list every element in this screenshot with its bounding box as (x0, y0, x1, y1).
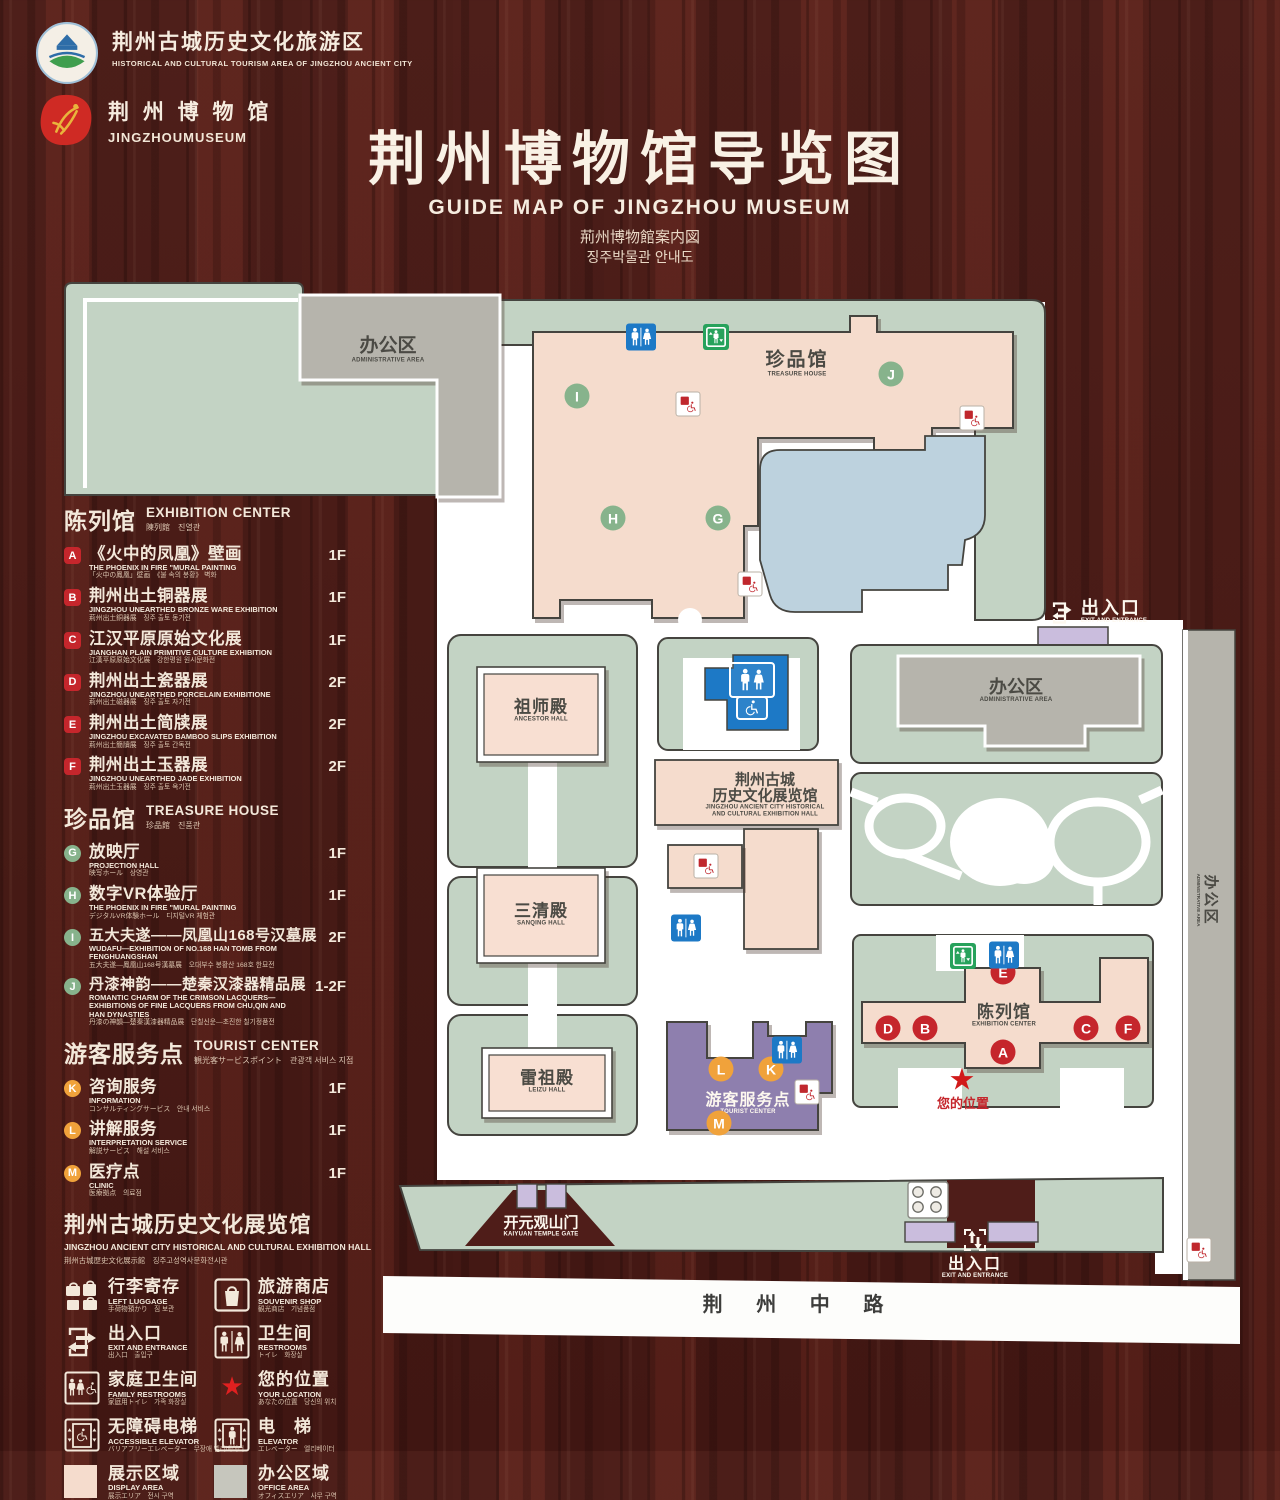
map-marker-J: J (879, 362, 904, 387)
accessible-elevator-icon (1187, 1238, 1212, 1263)
letter-badge: B (64, 589, 81, 606)
south-turnstile (908, 1182, 948, 1218)
accessible-elevator-icon (64, 1418, 100, 1452)
label-exit-south: 出入口 EXIT AND ENTRANCE (942, 1256, 1008, 1280)
treasure-house-notch (678, 608, 702, 632)
restroom-icon (671, 915, 701, 942)
legend-item-G: G 放映厅PROJECTION HALL映写ホール 상영관 1F (64, 843, 346, 878)
restroom-icon (772, 1037, 802, 1064)
label-admin-northwest: 办公区 ADMINISTRATIVE AREA (352, 337, 425, 364)
legend-item-M: M 医疗点CLINIC医療拠点 의료점 1F (64, 1163, 346, 1198)
label-sanqing-hall: 三清殿 SANQING HALL (514, 903, 568, 928)
floor-label: 1-2F (315, 978, 346, 995)
legend-item-F: F 荆州出土玉器展JINGZHOU UNEARTHED JADE EXHIBIT… (64, 756, 346, 791)
legend-item-H: H 数字VR体验厅THE PHOENIX IN FIRE "MURAL PAIN… (64, 885, 346, 920)
south-booth-w (905, 1222, 955, 1242)
label-road: 荆 州 中 路 (703, 1295, 898, 1317)
accessible-elevator-icon (676, 392, 701, 417)
restroom-icon (729, 662, 775, 698)
legend-item-B: B 荆州出土铜器展JINGZHOU UNEARTHED BRONZE WARE … (64, 587, 346, 622)
floor-label: 1F (328, 1165, 346, 1182)
luggage-icon (64, 1278, 100, 1312)
legend-item-K: K 咨询服务INFORMATIONコンサルティングサービス 안내 서비스 1F (64, 1078, 346, 1113)
label-exit-east: 出入口 EXIT AND ENTRANCE (1081, 599, 1147, 625)
label-exhibition-hall: 荆州古城 历史文化展览馆 JINGZHOU ANCIENT CITY HISTO… (706, 772, 825, 817)
label-kaiyuan-gate: 开元观山门 KAIYUAN TEMPLE GATE (503, 1216, 578, 1239)
letter-badge: A (64, 547, 81, 564)
letter-badge: K (64, 1080, 81, 1097)
legend-item-I: I 五大夫遂——凤凰山168号汉墓展WUDAFU—EXHIBITION OF N… (64, 927, 346, 969)
admin-strip-east (1183, 630, 1235, 1280)
display-area-swatch (64, 1465, 97, 1498)
gate-turnstile-w (517, 1184, 537, 1208)
map-marker-G: G (706, 506, 731, 531)
section-title: 陈列馆 (64, 502, 136, 536)
family-restrooms-icon (64, 1371, 100, 1405)
map-marker-H: H (601, 506, 626, 531)
section-treasure-house: 珍品馆 TREASURE HOUSE 珍品館 진품관 (64, 800, 346, 834)
location-star-icon: ★ (214, 1371, 250, 1405)
letter-badge: H (64, 887, 81, 904)
exhibition-hall-wing (744, 829, 818, 949)
facility-accessible-elevator: 无障碍电梯ACCESSIBLE ELEVATORバリアフリーエレベーター 무장애… (64, 1418, 214, 1454)
letter-badge: M (64, 1165, 81, 1182)
map-marker-L: L (709, 1057, 734, 1082)
floor-label: 1F (328, 1080, 346, 1097)
section-tourist-center: 游客服务点 TOURIST CENTER 観光客サービスポイント 관광객 서비스… (64, 1035, 346, 1069)
elevator-icon (214, 1418, 250, 1452)
exit-entrance-icon (1049, 600, 1075, 626)
floor-label: 1F (328, 845, 346, 862)
letter-badge: G (64, 845, 81, 862)
map-marker-C: C (1074, 1016, 1099, 1041)
label-treasure-house: 珍品馆 TREASURE HOUSE (765, 351, 828, 378)
letter-badge: I (64, 929, 81, 946)
floor-label: 1F (328, 887, 346, 904)
facility-elevator: 电 梯ELEVATORエレベーター 엘리베이터 (214, 1418, 364, 1454)
letter-badge: D (64, 674, 81, 691)
label-leizu-hall: 雷祖殿 LEIZU HALL (520, 1070, 574, 1095)
accessible-elevator-icon (738, 572, 763, 597)
facility-family-restrooms: 家庭卫生间FAMILY RESTROOMS家庭用トイレ 가족 화장실 (64, 1371, 214, 1407)
area-display: 展示区域DISPLAY AREA展示エリア 전시 구역 (64, 1465, 214, 1500)
accessible-elevator-icon (960, 406, 985, 431)
floor-label: 1F (328, 589, 346, 606)
your-location-star-icon: ★ (949, 1063, 976, 1098)
floor-label: 1F (328, 547, 346, 564)
accessible-elevator-icon (795, 1080, 820, 1105)
map-marker-M: M (707, 1111, 732, 1136)
legend-panel: 陈列馆 EXHIBITION CENTER 陳列館 진열관 A 《火中的凤凰》壁… (64, 500, 346, 1500)
exit-entrance-icon (64, 1325, 100, 1359)
letter-badge: F (64, 758, 81, 775)
map-marker-I: I (565, 384, 590, 409)
admin-strip-edge (1183, 630, 1188, 1280)
facility-legend: 行李寄存LEFT LUGGAGE手荷物預かり 짐 보관 旅游商店SOUVENIR… (64, 1278, 346, 1500)
exit-entrance-icon (962, 1227, 988, 1253)
label-admin-strip: 办公区 ADMINISTRATIVE AREA (1196, 874, 1222, 927)
elevator-icon (703, 324, 729, 350)
label-ancestor-hall: 祖师殿 ANCESTOR HALL (514, 699, 568, 724)
letter-badge: L (64, 1122, 81, 1139)
facility-souvenir-shop: 旅游商店SOUVENIR SHOP観光商店 기념품점 (214, 1278, 364, 1314)
map-marker-B: B (913, 1016, 938, 1041)
map-marker-D: D (876, 1016, 901, 1041)
facility-your-location: ★ 您的位置YOUR LOCATIONあなたの位置 당신의 위치 (214, 1371, 364, 1407)
restroom-icon (626, 324, 656, 351)
area-office: 办公区域OFFICE AREAオフィスエリア 사무 구역 (214, 1465, 364, 1500)
floor-label: 2F (328, 716, 346, 733)
section-exhibition-center: 陈列馆 EXHIBITION CENTER 陳列館 진열관 (64, 502, 346, 536)
garden-pond-lobe (994, 836, 1054, 884)
floor-label: 1F (328, 1122, 346, 1139)
legend-item-A: A 《火中的凤凰》壁画THE PHOENIX IN FIRE "MURAL PA… (64, 545, 346, 580)
map-marker-F: F (1116, 1016, 1141, 1041)
floor-label: 2F (328, 929, 346, 946)
letter-badge: E (64, 716, 81, 733)
exhibition-center-south-path-e (1060, 1068, 1124, 1108)
accessible-elevator-icon (694, 854, 719, 879)
legend-item-E: E 荆州出土简牍展JINGZHOU EXCAVATED BAMBOO SLIPS… (64, 714, 346, 749)
floor-label: 2F (328, 674, 346, 691)
facility-restrooms: 卫生间RESTROOMSトイレ 화장실 (214, 1325, 364, 1361)
label-admin-east: 办公区 ADMINISTRATIVE AREA (980, 678, 1053, 704)
accessible-restroom-icon (736, 696, 768, 720)
restroom-icon (989, 942, 1019, 969)
south-booth-e (988, 1222, 1038, 1242)
floor-label: 2F (328, 758, 346, 775)
facility-left-luggage: 行李寄存LEFT LUGGAGE手荷物預かり 짐 보관 (64, 1278, 214, 1314)
legend-item-L: L 讲解服务INTERPRETATION SERVICE解説サービス 해설 서비… (64, 1120, 346, 1155)
legend-item-C: C 江汉平原原始文化展JIANGHAN PLAIN PRIMITIVE CULT… (64, 630, 346, 665)
label-exhibition-center: 陈列馆 EXHIBITION CENTER (972, 1004, 1036, 1029)
floor-label: 1F (328, 632, 346, 649)
office-area-swatch (214, 1465, 247, 1498)
label-your-location: 您的位置 (937, 1097, 989, 1111)
restrooms-icon (214, 1325, 250, 1359)
facility-exit-entrance: 出入口EXIT AND ENTRANCE出入口 출입구 (64, 1325, 214, 1361)
elevator-icon (950, 943, 976, 969)
exhibition-hall-note: 荆州古城历史文化展览馆 JINGZHOU ANCIENT CITY HISTOR… (64, 1208, 346, 1266)
gate-turnstile-e (546, 1184, 566, 1208)
legend-item-D: D 荆州出土瓷器展JINGZHOU UNEARTHED PORCELAIN EX… (64, 672, 346, 707)
letter-badge: C (64, 632, 81, 649)
map-marker-A: A (991, 1040, 1016, 1065)
letter-badge: J (64, 978, 81, 995)
legend-item-J: J 丹漆神韵——楚秦汉漆器精品展ROMANTIC CHARM OF THE CR… (64, 976, 346, 1027)
souvenir-shop-icon (214, 1278, 250, 1312)
